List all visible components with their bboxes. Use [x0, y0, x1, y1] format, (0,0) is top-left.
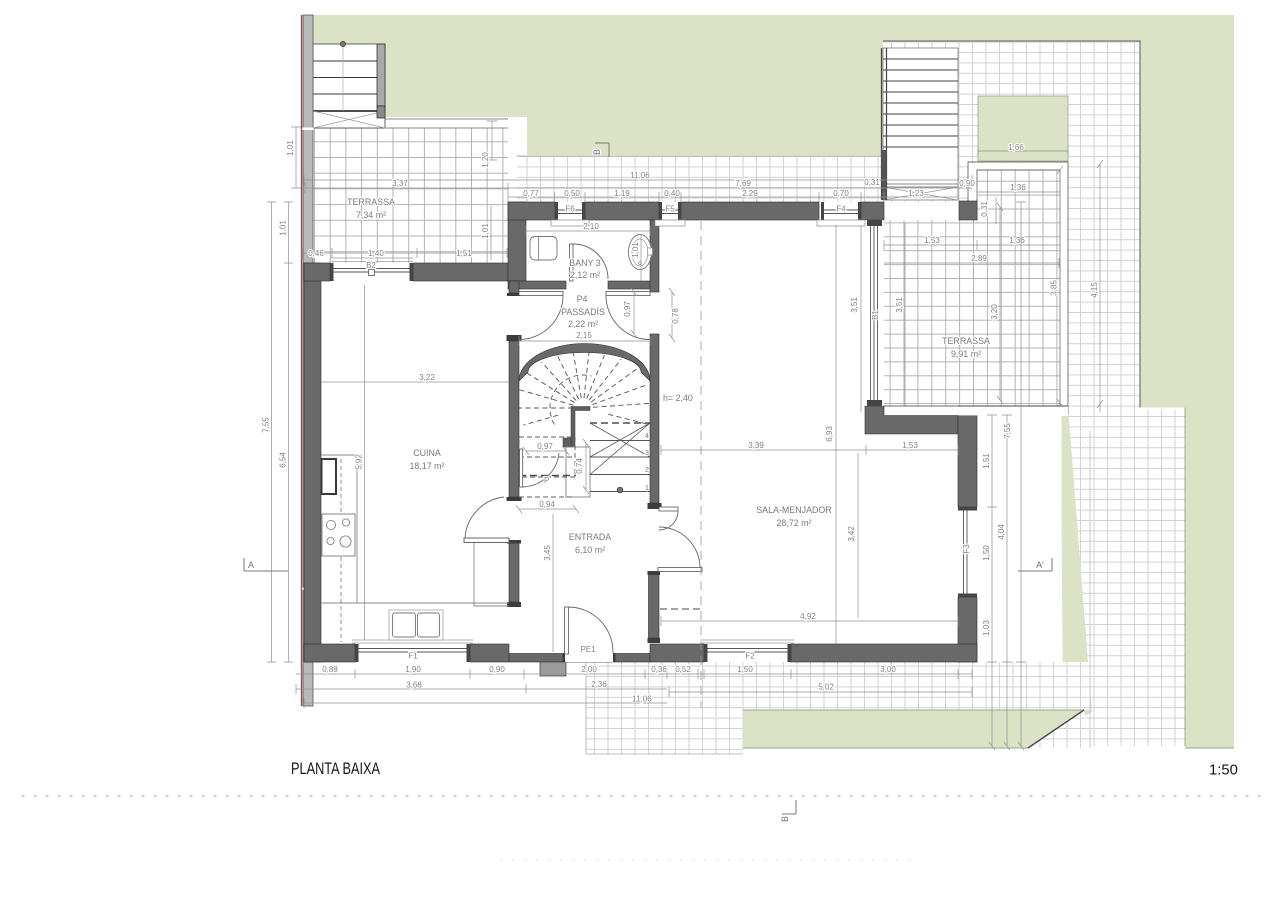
- svg-text:F6: F6: [565, 205, 575, 214]
- svg-text:2,36: 2,36: [591, 680, 607, 689]
- svg-text:B: B: [592, 149, 602, 155]
- svg-text:F5: F5: [665, 205, 675, 214]
- svg-text:3,85: 3,85: [1050, 280, 1059, 296]
- svg-text:28,72 m²: 28,72 m²: [776, 518, 811, 528]
- svg-text:4,92: 4,92: [800, 612, 816, 621]
- svg-text:1,50: 1,50: [982, 545, 991, 561]
- svg-text:PASSADÍS: PASSADÍS: [561, 307, 605, 317]
- svg-text:0,40: 0,40: [664, 189, 680, 198]
- svg-text:6,93: 6,93: [825, 426, 834, 442]
- svg-text:1,50: 1,50: [737, 665, 753, 674]
- svg-text:3,51: 3,51: [850, 297, 859, 313]
- svg-text:9,91 m²: 9,91 m²: [951, 349, 981, 359]
- svg-text:0,74: 0,74: [575, 458, 584, 474]
- svg-text:0,36: 0,36: [651, 665, 667, 674]
- svg-text:5,92: 5,92: [355, 454, 364, 470]
- svg-text:0,88: 0,88: [322, 665, 338, 674]
- svg-text:B: B: [780, 816, 790, 822]
- svg-text:A: A: [248, 560, 254, 570]
- svg-text:1,66: 1,66: [1008, 143, 1024, 152]
- svg-text:2,22 m²: 2,22 m²: [568, 319, 598, 329]
- svg-text:1,53: 1,53: [902, 441, 918, 450]
- svg-text:1,40: 1,40: [368, 249, 384, 258]
- svg-text:B1: B1: [871, 310, 880, 320]
- svg-text:0,52: 0,52: [675, 665, 691, 674]
- svg-text:1,19: 1,19: [614, 189, 630, 198]
- svg-text:PE1: PE1: [580, 645, 596, 654]
- svg-text:7,34 m²: 7,34 m²: [356, 210, 386, 220]
- svg-text:A': A': [1036, 560, 1044, 570]
- svg-text:3,20: 3,20: [990, 304, 999, 320]
- svg-text:B2: B2: [366, 261, 376, 270]
- svg-text:2,89: 2,89: [971, 254, 987, 263]
- svg-text:2,10: 2,10: [583, 222, 599, 231]
- svg-text:3,68: 3,68: [406, 681, 422, 690]
- svg-text:6,54: 6,54: [279, 452, 288, 468]
- svg-text:18,17 m²: 18,17 m²: [409, 461, 444, 471]
- svg-text:3,51: 3,51: [895, 297, 904, 313]
- svg-text:4: 4: [645, 433, 649, 440]
- svg-text:3,00: 3,00: [880, 665, 896, 674]
- svg-text:0,94: 0,94: [539, 500, 555, 509]
- svg-text:1,20: 1,20: [481, 152, 490, 168]
- svg-text:CUINA: CUINA: [413, 448, 441, 458]
- svg-text:2,12 m²: 2,12 m²: [570, 270, 600, 280]
- svg-text:1:50: 1:50: [1209, 763, 1238, 779]
- svg-text:3,37: 3,37: [392, 179, 408, 188]
- svg-text:2,15: 2,15: [576, 331, 592, 340]
- svg-text:TERRASSA: TERRASSA: [347, 197, 395, 207]
- svg-text:1,36: 1,36: [1010, 183, 1026, 192]
- svg-text:0,97: 0,97: [537, 442, 553, 451]
- svg-text:0,77: 0,77: [523, 189, 539, 198]
- svg-text:1: 1: [645, 485, 649, 492]
- svg-text:5,02: 5,02: [818, 683, 834, 692]
- svg-text:2,00: 2,00: [581, 665, 597, 674]
- svg-text:1,90: 1,90: [405, 665, 421, 674]
- svg-text:0,46: 0,46: [308, 249, 324, 258]
- svg-text:6,10 m²: 6,10 m²: [575, 545, 605, 555]
- svg-text:1,36: 1,36: [1009, 236, 1025, 245]
- svg-text:F1: F1: [408, 652, 418, 661]
- svg-text:1,01: 1,01: [631, 242, 640, 258]
- svg-text:F3: F3: [962, 544, 971, 554]
- svg-text:0,31: 0,31: [864, 178, 880, 187]
- svg-text:0,50: 0,50: [564, 189, 580, 198]
- svg-text:0,97: 0,97: [623, 301, 632, 317]
- svg-text:4,04: 4,04: [997, 524, 1006, 540]
- svg-text:BANY 3: BANY 3: [569, 258, 600, 268]
- svg-text:1,23: 1,23: [908, 189, 924, 198]
- svg-text:0,90: 0,90: [489, 665, 505, 674]
- svg-text:h= 2,40: h= 2,40: [663, 393, 693, 403]
- svg-text:0,78: 0,78: [671, 308, 680, 324]
- svg-text:1,51: 1,51: [456, 249, 472, 258]
- svg-text:1,01: 1,01: [481, 223, 490, 239]
- svg-text:1,01: 1,01: [279, 220, 288, 236]
- svg-text:2,29: 2,29: [742, 189, 758, 198]
- svg-text:0,70: 0,70: [833, 189, 849, 198]
- svg-text:3: 3: [645, 450, 649, 457]
- svg-text:P4: P4: [577, 294, 588, 304]
- svg-text:1,03: 1,03: [982, 620, 991, 636]
- svg-text:1,51: 1,51: [982, 453, 991, 469]
- svg-text:7,69: 7,69: [735, 179, 751, 188]
- svg-text:4,15: 4,15: [1090, 282, 1099, 298]
- svg-text:0,31: 0,31: [980, 201, 989, 217]
- svg-text:SALA-MENJADOR: SALA-MENJADOR: [756, 505, 831, 515]
- svg-text:3,42: 3,42: [847, 526, 856, 542]
- svg-text:1,53: 1,53: [924, 236, 940, 245]
- svg-text:2: 2: [645, 467, 649, 474]
- svg-text:0,90: 0,90: [959, 179, 975, 188]
- svg-text:1,01: 1,01: [286, 140, 295, 156]
- svg-text:3,45: 3,45: [543, 545, 552, 561]
- svg-text:3,22: 3,22: [419, 373, 435, 382]
- svg-text:ENTRADA: ENTRADA: [569, 532, 611, 542]
- svg-text:11,06: 11,06: [630, 171, 650, 180]
- svg-text:3,39: 3,39: [748, 441, 764, 450]
- svg-text:7,55: 7,55: [1003, 423, 1012, 439]
- svg-text:F4: F4: [836, 205, 846, 214]
- svg-text:TERRASSA: TERRASSA: [942, 336, 990, 346]
- svg-text:PLANTA BAIXA: PLANTA BAIXA: [291, 760, 380, 778]
- svg-text:11,06: 11,06: [632, 695, 652, 704]
- svg-text:P: P: [544, 476, 549, 485]
- svg-text:F2: F2: [745, 652, 755, 661]
- svg-text:7,55: 7,55: [262, 417, 271, 433]
